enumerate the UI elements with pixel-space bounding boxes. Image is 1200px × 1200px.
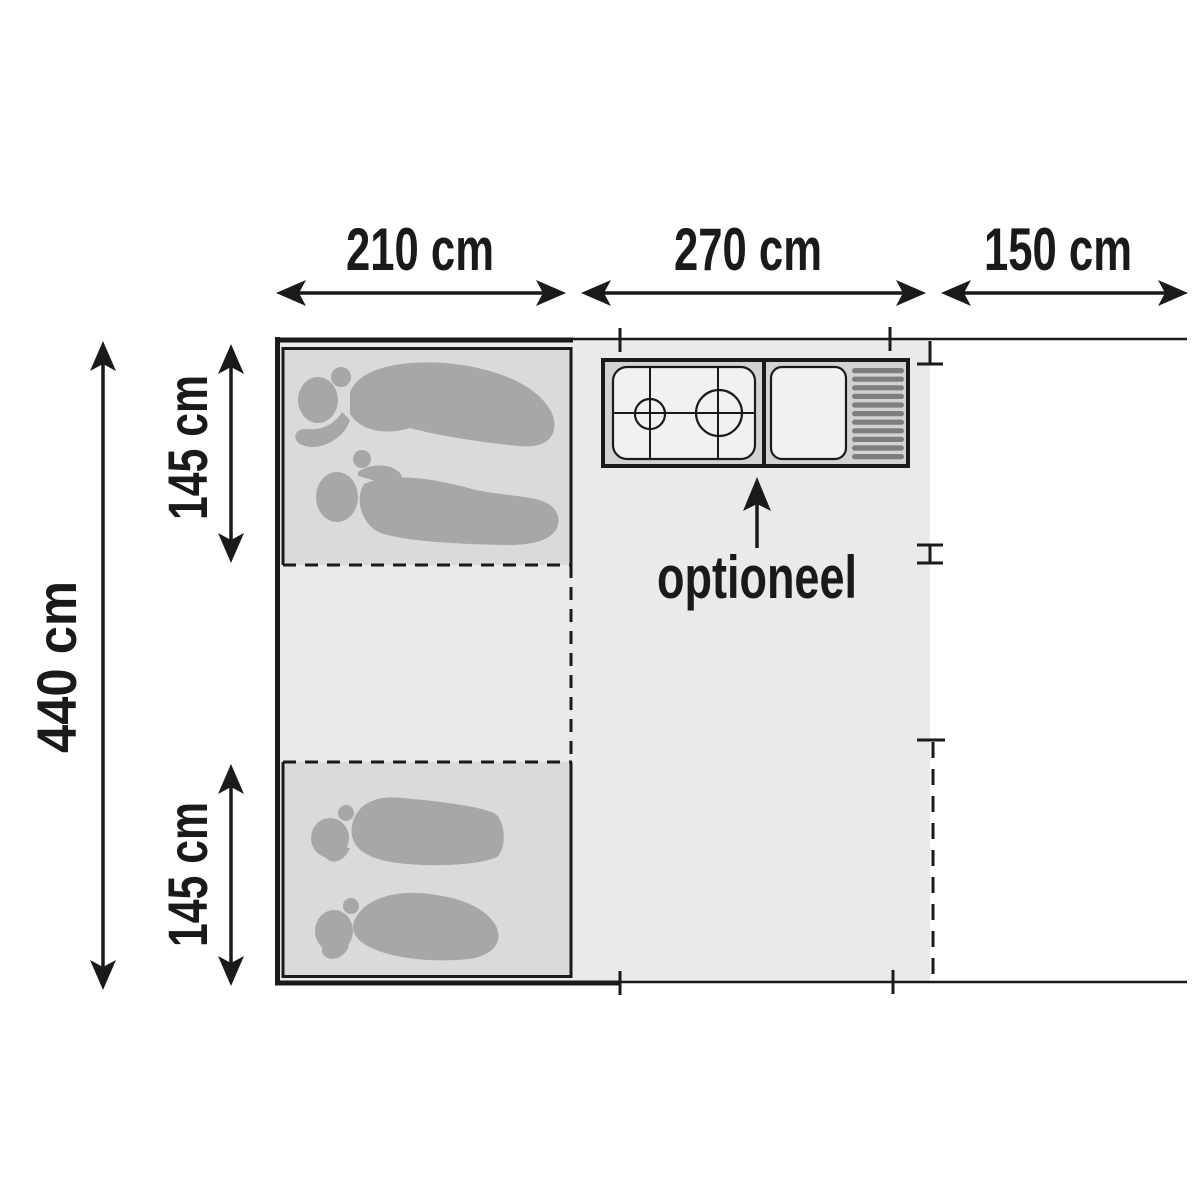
floor-plan-page: 210 cm 270 cm 150 cm 440 cm 145 cm 145 c…	[0, 0, 1200, 1200]
dimension-label-270: 270 cm	[674, 216, 822, 283]
drain-rack-icon	[852, 368, 904, 459]
dimension-label-440: 440 cm	[25, 581, 88, 753]
sink-icon	[771, 367, 846, 459]
dimension-label-150: 150 cm	[984, 216, 1132, 283]
dimension-label-145-top: 145 cm	[156, 375, 219, 520]
optioneel-label: optioneel	[657, 544, 857, 611]
floor-plan-svg: 210 cm 270 cm 150 cm 440 cm 145 cm 145 c…	[0, 0, 1200, 1200]
stove-icon	[613, 367, 755, 459]
dimension-label-210: 210 cm	[346, 216, 494, 283]
kitchen-unit	[603, 360, 908, 466]
dimension-label-145-bottom: 145 cm	[156, 802, 219, 947]
sink-basin	[771, 367, 846, 459]
